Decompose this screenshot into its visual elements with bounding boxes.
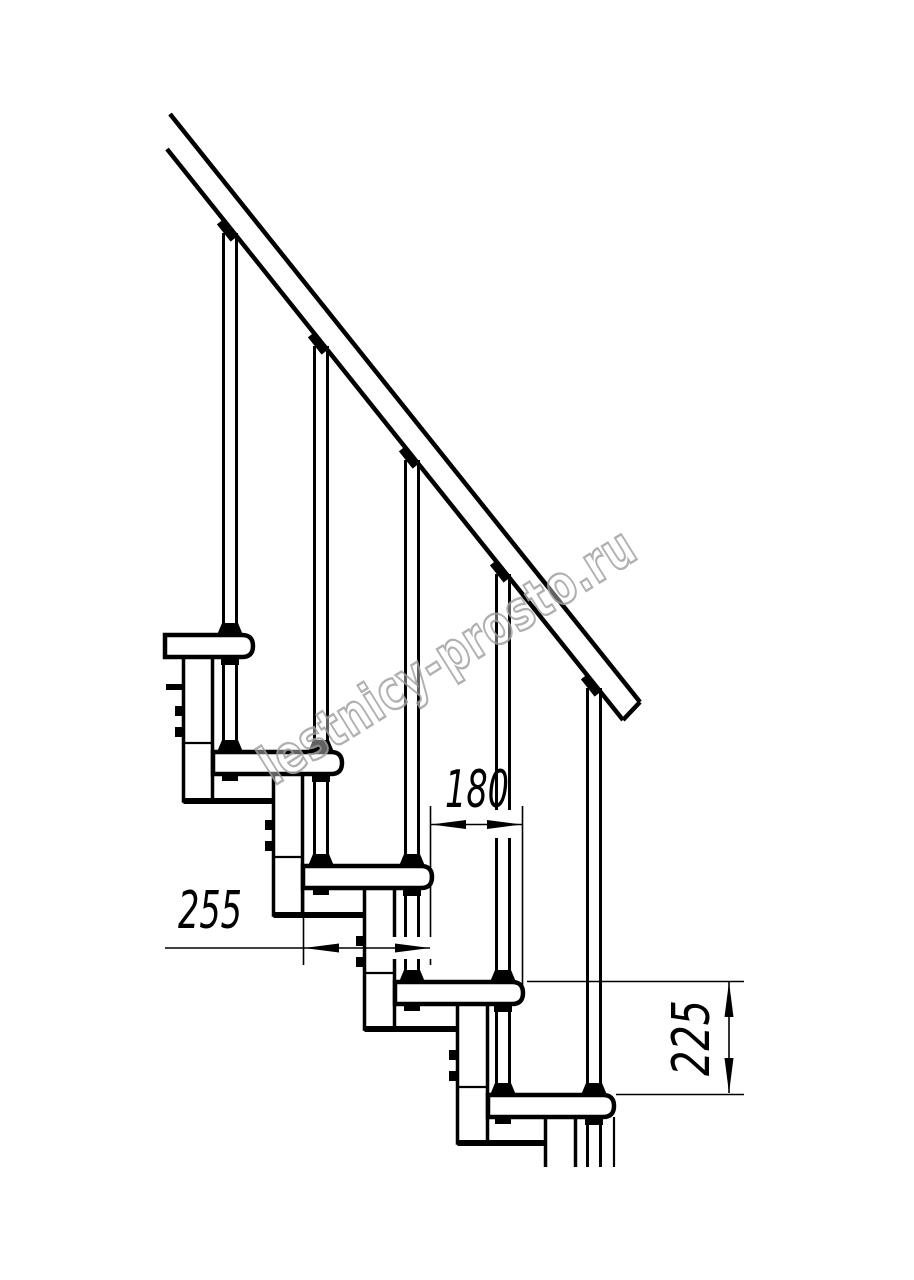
- dim-180-label: 180: [445, 760, 509, 820]
- arrow-left-icon: [304, 944, 339, 953]
- module-column-5-partial: [546, 1117, 615, 1167]
- module-column-1: [166, 657, 274, 801]
- bolt-icon: [356, 936, 365, 946]
- baluster-2: [308, 332, 334, 752]
- nut-icon: [222, 774, 238, 781]
- staircase-technical-drawing: 180 255 225 lestnicy-prosto.ru: [0, 0, 914, 1280]
- bolt-icon: [449, 1071, 458, 1081]
- tread-1: [165, 635, 253, 657]
- bolt-icon: [175, 706, 184, 716]
- bolt-icon: [265, 841, 274, 851]
- arrow-left-icon: [431, 820, 466, 829]
- dim-225-label: 225: [662, 1000, 722, 1076]
- bolt-icon: [449, 1050, 458, 1060]
- arrow-up-icon: [725, 982, 734, 1017]
- dim-255-label: 255: [178, 881, 242, 941]
- bolt-icon: [175, 727, 184, 737]
- baluster-5: [581, 674, 607, 1095]
- bolt-icon: [356, 957, 365, 967]
- bolt-icon: [265, 820, 274, 830]
- nut-icon: [404, 1004, 420, 1011]
- dimension-225: 225: [527, 982, 744, 1095]
- support-rod-3: [399, 887, 425, 982]
- arrow-down-icon: [725, 1058, 734, 1093]
- nut-icon: [495, 1117, 511, 1124]
- tread-4: [395, 982, 523, 1004]
- nut-icon: [313, 888, 329, 895]
- tread-3: [303, 866, 432, 888]
- drawing-page: 180 255 225 lestnicy-prosto.ru: [0, 0, 914, 1280]
- tread-5: [488, 1095, 614, 1117]
- support-rod-4: [490, 1003, 516, 1095]
- support-rod-2: [308, 773, 334, 866]
- baluster-1: [217, 219, 243, 635]
- support-rod-5-partial: [585, 1116, 603, 1167]
- support-rod-1: [217, 656, 243, 752]
